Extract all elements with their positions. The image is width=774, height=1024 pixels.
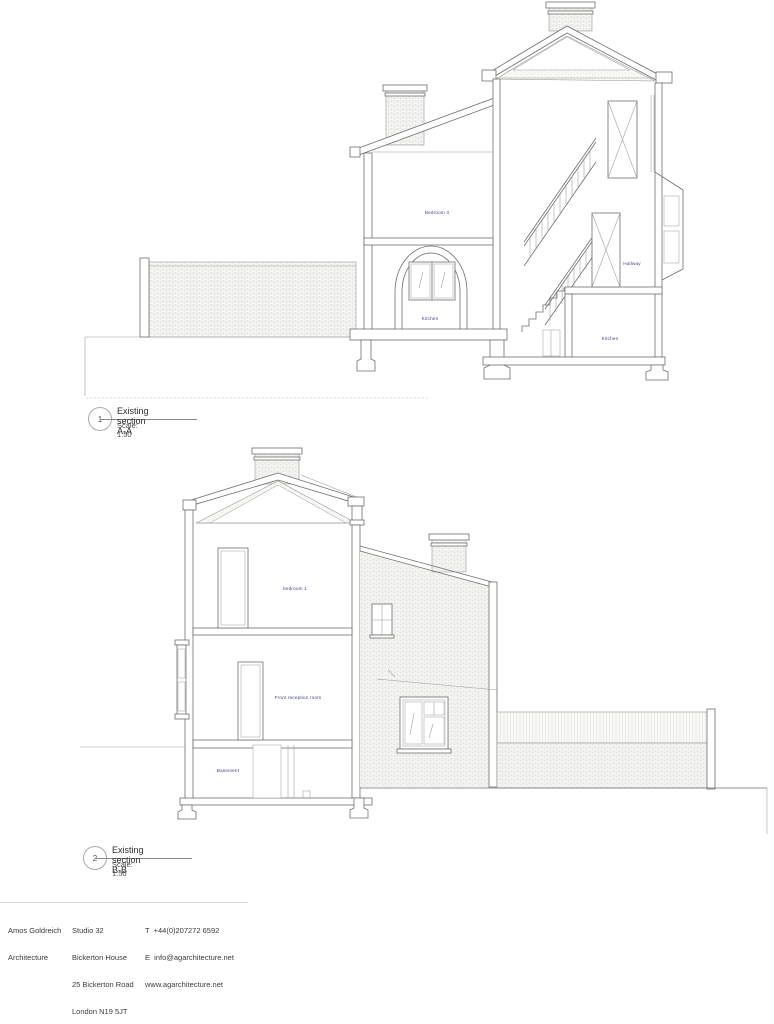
firm-name: Amos Goldreich Architecture (8, 908, 61, 980)
garden-wall-left (140, 258, 356, 337)
section-bb-scale: Scale: 1:50 (112, 860, 133, 878)
contact-phone: T +44(0)207272 6592 (145, 926, 234, 935)
kitchen-arch-window (395, 246, 467, 340)
main-gable-roof-chimney (482, 2, 672, 83)
staircase (522, 138, 596, 356)
room-label-front-reception: Front reception room (275, 695, 322, 700)
firm-contact: T +44(0)207272 6592 E info@agarchitectur… (145, 908, 234, 1007)
firm-name-line2: Architecture (8, 953, 61, 962)
bedroom3-floor (364, 238, 493, 245)
address-line3: 25 Bickerton Road (72, 980, 134, 989)
left-house-roof-chimney (350, 85, 497, 340)
rear-wing-elevation (360, 534, 497, 787)
address-line1: Studio 32 (72, 926, 134, 935)
ground-line-aa (85, 337, 428, 398)
garden-wall-right (497, 709, 715, 789)
room-label-bedroom1: bedroom 1 (283, 586, 307, 591)
room-label-basement: Basement (217, 768, 240, 773)
contact-website: www.agarchitecture.net (145, 980, 234, 989)
room-label-kitchen-lower: Kitchen (602, 336, 619, 341)
drawing-sheet: Bedroom 3 Kitchen Hallway Kitchen 1 Exis… (0, 0, 774, 1024)
contact-email: E info@agarchitecture.net (145, 953, 234, 962)
footer-rule (0, 902, 248, 903)
kitchen-floor-foundations (350, 329, 510, 379)
section-bb-drawing: bedroom 1 Front reception room Basement (0, 430, 774, 850)
doors-aa (592, 101, 637, 287)
room-label-bedroom3: Bedroom 3 (425, 210, 450, 215)
room-label-kitchen: Kitchen (422, 316, 439, 321)
firm-address: Studio 32 Bickerton House 25 Bickerton R… (72, 908, 134, 1024)
room-label-hallway: Hallway (623, 261, 641, 266)
address-line2: Bickerton House (72, 953, 134, 962)
hallway-lower-kitchen (483, 287, 668, 380)
ground-line-bb (360, 788, 767, 834)
doors-bb (218, 548, 263, 740)
address-line4: London N19 5JT (72, 1007, 134, 1016)
section-aa-drawing: Bedroom 3 Kitchen Hallway Kitchen (0, 0, 774, 410)
firm-name-line1: Amos Goldreich (8, 926, 61, 935)
main-roof-bb (183, 448, 364, 525)
basement-detail (253, 745, 310, 798)
